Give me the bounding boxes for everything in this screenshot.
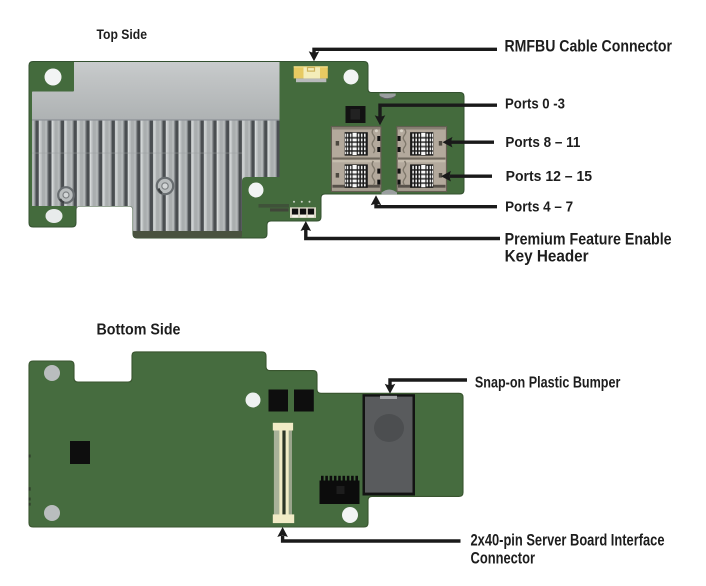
svg-text:Key Header: Key Header: [505, 248, 590, 266]
svg-text:RMFBU Cable Connector: RMFBU Cable Connector: [505, 38, 673, 56]
svg-text:Bottom Side: Bottom Side: [97, 322, 181, 339]
svg-text:Snap-on Plastic Bumper: Snap-on Plastic Bumper: [475, 375, 621, 392]
svg-text:Ports 8 – 11: Ports 8 – 11: [505, 135, 580, 151]
svg-text:Ports 4 – 7: Ports 4 – 7: [505, 200, 573, 216]
svg-text:Connector: Connector: [471, 550, 536, 568]
svg-text:Top Side: Top Side: [97, 27, 148, 42]
svg-text:Ports 0 -3: Ports 0 -3: [505, 96, 565, 112]
svg-text:Premium Feature Enable: Premium Feature Enable: [505, 230, 672, 248]
svg-text:2x40-pin Server Board Interfac: 2x40-pin Server Board Interface: [471, 531, 665, 549]
svg-text:Ports 12 – 15: Ports 12 – 15: [506, 169, 593, 185]
